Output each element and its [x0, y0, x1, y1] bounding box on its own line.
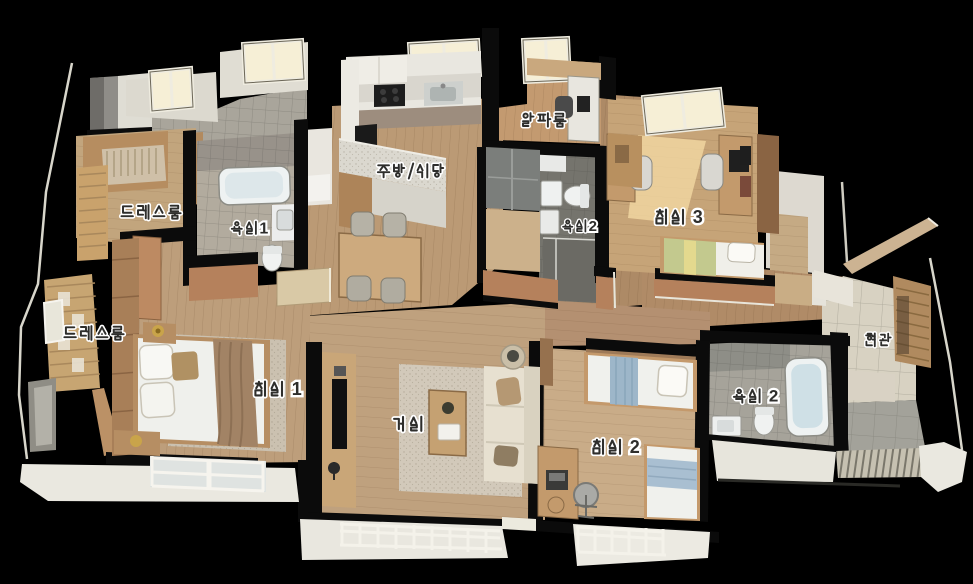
svg-text:3: 3 — [693, 207, 703, 227]
svg-text:2: 2 — [630, 437, 640, 457]
svg-text:1: 1 — [259, 220, 268, 237]
svg-text:2: 2 — [589, 218, 597, 235]
svg-text:1: 1 — [292, 379, 302, 399]
svg-text:2: 2 — [769, 387, 778, 406]
